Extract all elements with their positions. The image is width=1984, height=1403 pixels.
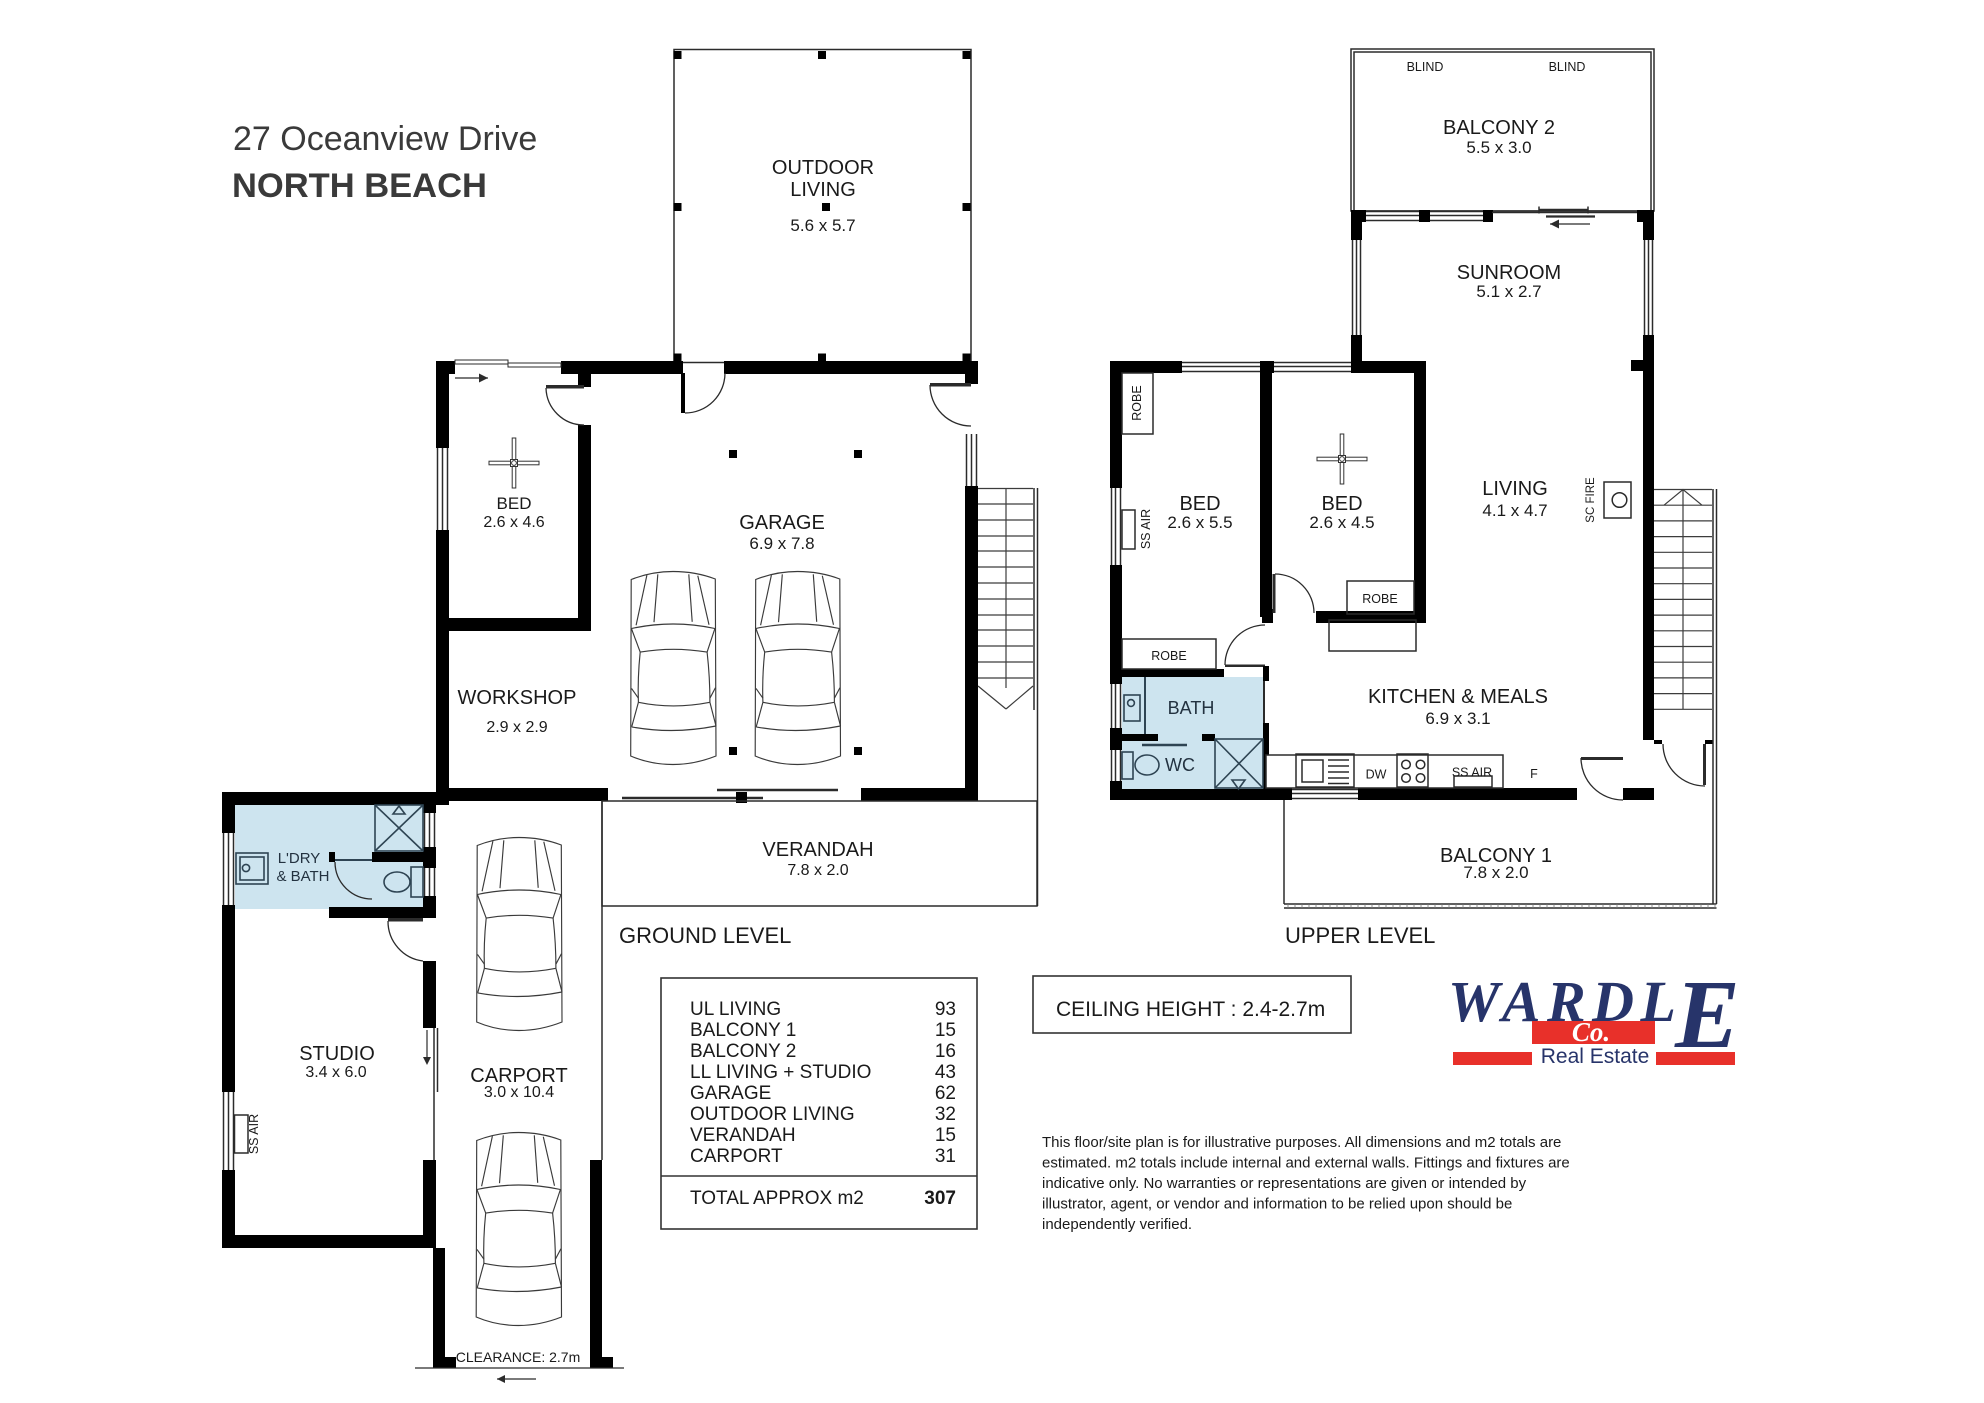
svg-text:Co.: Co. xyxy=(1572,1017,1610,1047)
svg-text:GARAGE: GARAGE xyxy=(690,1083,771,1104)
svg-text:5.1 x 2.7: 5.1 x 2.7 xyxy=(1476,282,1541,301)
svg-text:DW: DW xyxy=(1366,768,1387,782)
svg-text:WORKSHOP: WORKSHOP xyxy=(458,687,577,709)
svg-text:LIVING: LIVING xyxy=(1482,478,1548,500)
svg-text:93: 93 xyxy=(935,999,956,1020)
svg-text:indicative only. No warranties: indicative only. No warranties or repres… xyxy=(1042,1175,1527,1192)
svg-text:BALCONY 1: BALCONY 1 xyxy=(690,1020,796,1041)
svg-text:CEILING HEIGHT : 2.4-2.7m: CEILING HEIGHT : 2.4-2.7m xyxy=(1056,998,1325,1021)
svg-text:6.9 x 3.1: 6.9 x 3.1 xyxy=(1425,709,1490,728)
svg-text:15: 15 xyxy=(935,1125,956,1146)
svg-text:31: 31 xyxy=(935,1146,956,1167)
svg-text:2.9 x 2.9: 2.9 x 2.9 xyxy=(486,719,547,736)
svg-text:F: F xyxy=(1530,767,1538,781)
svg-text:UL LIVING: UL LIVING xyxy=(690,999,781,1020)
svg-text:5.6 x 5.7: 5.6 x 5.7 xyxy=(790,216,855,235)
svg-text:Real Estate: Real Estate xyxy=(1541,1045,1650,1068)
svg-text:E: E xyxy=(1674,961,1740,1068)
svg-text:WC: WC xyxy=(1165,755,1195,775)
svg-text:2.6 x 4.6: 2.6 x 4.6 xyxy=(483,514,544,531)
svg-text:L'DRY: L'DRY xyxy=(278,850,321,867)
svg-text:BLIND: BLIND xyxy=(1549,60,1586,74)
svg-text:2.6 x 4.5: 2.6 x 4.5 xyxy=(1309,513,1374,532)
svg-text:LL LIVING + STUDIO: LL LIVING + STUDIO xyxy=(690,1062,871,1083)
svg-text:This floor/site plan is for il: This floor/site plan is for illustrative… xyxy=(1042,1134,1561,1151)
svg-text:illustrator, agent, or vendor: illustrator, agent, or vendor and inform… xyxy=(1042,1196,1512,1213)
svg-text:27 Oceanview Drive: 27 Oceanview Drive xyxy=(233,120,537,158)
svg-text:VERANDAH: VERANDAH xyxy=(762,839,873,861)
svg-text:BLIND: BLIND xyxy=(1407,60,1444,74)
svg-text:SC FIRE: SC FIRE xyxy=(1585,477,1597,523)
svg-text:NORTH BEACH: NORTH BEACH xyxy=(232,167,487,205)
svg-text:SS AIR: SS AIR xyxy=(1452,766,1492,780)
svg-text:estimated. m2 totals include i: estimated. m2 totals include internal an… xyxy=(1042,1155,1570,1172)
svg-text:307: 307 xyxy=(924,1188,956,1209)
svg-text:32: 32 xyxy=(935,1104,956,1125)
svg-text:BED: BED xyxy=(1179,493,1220,515)
svg-text:SS AIR: SS AIR xyxy=(1139,509,1153,549)
svg-text:BATH: BATH xyxy=(1168,698,1215,718)
svg-text:6.9 x 7.8: 6.9 x 7.8 xyxy=(749,534,814,553)
svg-text:16: 16 xyxy=(935,1041,956,1062)
svg-text:STUDIO: STUDIO xyxy=(299,1043,375,1065)
svg-text:TOTAL APPROX m2: TOTAL APPROX m2 xyxy=(690,1188,864,1209)
svg-text:GROUND LEVEL: GROUND LEVEL xyxy=(619,923,791,948)
svg-text:LIVING: LIVING xyxy=(790,179,856,201)
svg-text:CLEARANCE: 2.7m: CLEARANCE: 2.7m xyxy=(456,1349,580,1365)
svg-text:CARPORT: CARPORT xyxy=(690,1146,783,1167)
svg-text:SS AIR: SS AIR xyxy=(247,1114,261,1154)
svg-text:7.8 x 2.0: 7.8 x 2.0 xyxy=(1463,863,1528,882)
svg-text:43: 43 xyxy=(935,1062,956,1083)
svg-text:BED: BED xyxy=(497,494,532,513)
svg-text:5.5 x 3.0: 5.5 x 3.0 xyxy=(1466,138,1531,157)
svg-text:BED: BED xyxy=(1321,493,1362,515)
svg-text:7.8 x 2.0: 7.8 x 2.0 xyxy=(787,862,848,879)
svg-text:ROBE: ROBE xyxy=(1362,592,1397,606)
svg-text:VERANDAH: VERANDAH xyxy=(690,1125,796,1146)
svg-text:4.1 x 4.7: 4.1 x 4.7 xyxy=(1482,501,1547,520)
svg-text:GARAGE: GARAGE xyxy=(739,512,825,534)
svg-text:ROBE: ROBE xyxy=(1130,385,1144,420)
svg-text:SUNROOM: SUNROOM xyxy=(1457,262,1561,284)
svg-text:BALCONY 2: BALCONY 2 xyxy=(690,1041,796,1062)
svg-text:62: 62 xyxy=(935,1083,956,1104)
svg-text:15: 15 xyxy=(935,1020,956,1041)
svg-text:OUTDOOR: OUTDOOR xyxy=(772,157,874,179)
svg-text:3.4 x 6.0: 3.4 x 6.0 xyxy=(305,1064,366,1081)
svg-text:UPPER LEVEL: UPPER LEVEL xyxy=(1285,923,1435,948)
svg-text:KITCHEN & MEALS: KITCHEN & MEALS xyxy=(1368,686,1548,708)
svg-text:2.6 x 5.5: 2.6 x 5.5 xyxy=(1167,513,1232,532)
svg-text:OUTDOOR LIVING: OUTDOOR LIVING xyxy=(690,1104,855,1125)
svg-text:BALCONY 2: BALCONY 2 xyxy=(1443,117,1555,139)
svg-text:& BATH: & BATH xyxy=(276,868,329,885)
svg-text:independently verified.: independently verified. xyxy=(1042,1216,1192,1233)
svg-text:ROBE: ROBE xyxy=(1151,649,1186,663)
svg-text:3.0 x 10.4: 3.0 x 10.4 xyxy=(484,1084,554,1101)
